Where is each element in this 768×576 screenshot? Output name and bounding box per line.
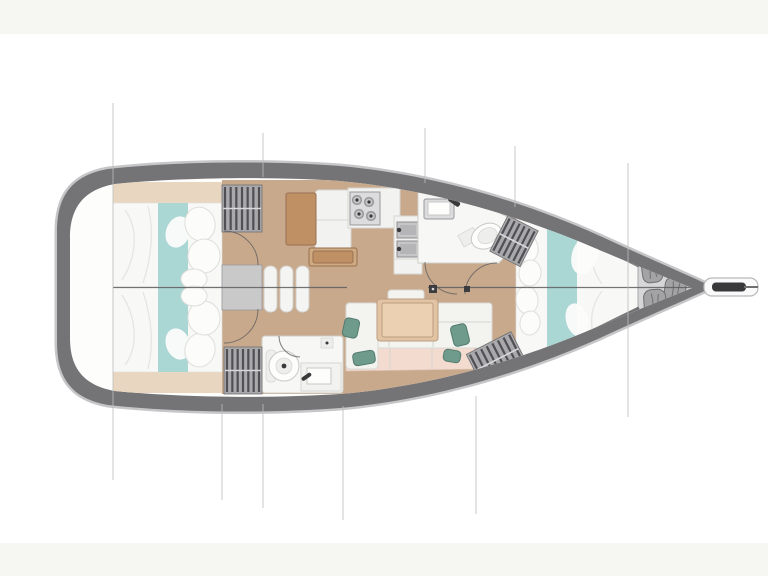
- stove-burner-center: [355, 198, 358, 201]
- vent-knob: [326, 342, 329, 345]
- stove-burner-center: [357, 212, 360, 215]
- page-band-top: [0, 0, 768, 34]
- companionway-step: [264, 266, 277, 312]
- faucet: [397, 247, 401, 251]
- aft-port-shelf: [113, 182, 222, 204]
- sink-basin-1-inner: [400, 225, 416, 235]
- floor-plan-canvas: [0, 0, 768, 576]
- saloon-bench-top: [313, 251, 353, 263]
- forward-head-basin: [428, 202, 450, 215]
- chart-table: [286, 193, 316, 245]
- aft-head: [262, 336, 343, 393]
- wardrobe-aft-port: [222, 185, 262, 232]
- bed-pillow: [181, 286, 207, 306]
- anchor-roller: [712, 283, 746, 292]
- yacht-floor-plan: [0, 0, 768, 576]
- stove-burner-center: [369, 214, 372, 217]
- companionway-step: [280, 266, 293, 312]
- green-accent-pillow: [342, 317, 361, 339]
- wardrobe-aft-starboard: [224, 347, 262, 394]
- aft-starboard-shelf: [113, 371, 222, 393]
- bowsprit: [704, 278, 758, 296]
- page-band-bottom: [0, 543, 768, 576]
- stove-burner-center: [367, 200, 370, 203]
- companionway: [222, 265, 309, 312]
- sink-basin-2-inner: [400, 244, 416, 254]
- interior-layout: [113, 180, 757, 394]
- faucet: [397, 228, 401, 232]
- companionway-steps: [264, 266, 309, 312]
- companionway-step: [296, 266, 309, 312]
- saloon-table-top: [382, 303, 433, 337]
- compression-post: [464, 286, 470, 292]
- toilet-drain: [282, 364, 287, 369]
- stove: [350, 192, 380, 225]
- mast-step-center: [432, 288, 435, 291]
- green-accent-pillow: [443, 349, 462, 364]
